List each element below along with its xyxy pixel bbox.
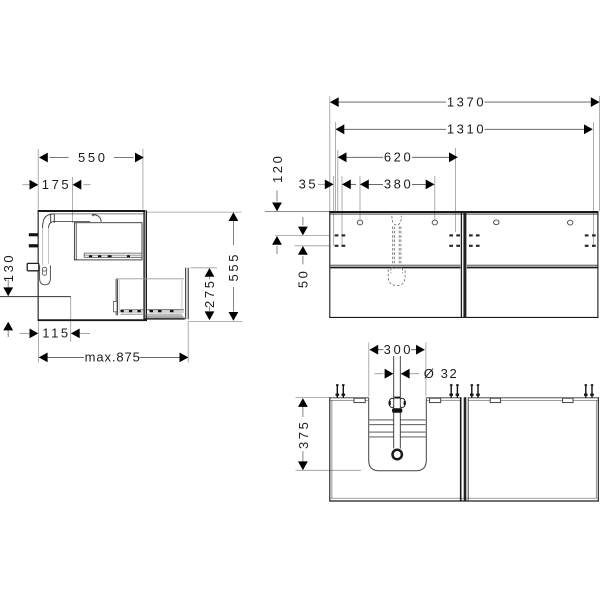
svg-text:375: 375 <box>296 420 311 450</box>
svg-text:555: 555 <box>226 252 241 282</box>
svg-text:1310: 1310 <box>447 122 486 137</box>
svg-text:50: 50 <box>295 268 310 288</box>
svg-text:300: 300 <box>384 342 414 357</box>
svg-text:550: 550 <box>78 150 108 165</box>
svg-text:175: 175 <box>42 177 72 192</box>
svg-text:115: 115 <box>42 326 71 341</box>
svg-text:275: 275 <box>202 278 217 308</box>
svg-text:380: 380 <box>384 177 414 192</box>
svg-text:Ø 32: Ø 32 <box>424 366 459 381</box>
svg-text:120: 120 <box>270 154 285 184</box>
svg-text:max.875: max.875 <box>85 350 141 365</box>
svg-text:1370: 1370 <box>447 95 486 110</box>
svg-text:620: 620 <box>384 150 414 165</box>
svg-text:35: 35 <box>299 177 319 192</box>
svg-text:130: 130 <box>1 253 16 283</box>
